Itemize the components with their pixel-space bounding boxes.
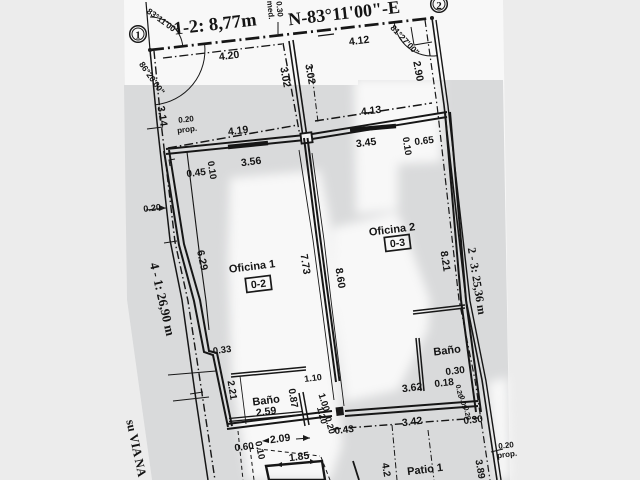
svg-text:3.45: 3.45	[355, 136, 377, 150]
svg-text:2: 2	[436, 0, 442, 12]
svg-text:4.13: 4.13	[360, 104, 382, 118]
svg-text:0.20: 0.20	[143, 202, 162, 214]
svg-text:0-3: 0-3	[389, 237, 406, 251]
svg-text:4.19: 4.19	[227, 124, 249, 138]
svg-text:1.10: 1.10	[304, 372, 323, 384]
svg-text:2.59: 2.59	[255, 405, 277, 419]
svg-text:1: 1	[135, 30, 141, 42]
svg-text:3.42: 3.42	[401, 415, 423, 429]
svg-text:0.33: 0.33	[212, 344, 232, 357]
svg-text:4.12: 4.12	[348, 34, 370, 48]
svg-text:2.09: 2.09	[269, 432, 291, 446]
svg-text:1.85: 1.85	[288, 450, 310, 464]
svg-text:3.62: 3.62	[401, 381, 423, 395]
svg-text:3.56: 3.56	[240, 155, 262, 169]
svg-text:4.20: 4.20	[218, 49, 240, 63]
svg-text:0-2: 0-2	[250, 278, 267, 292]
